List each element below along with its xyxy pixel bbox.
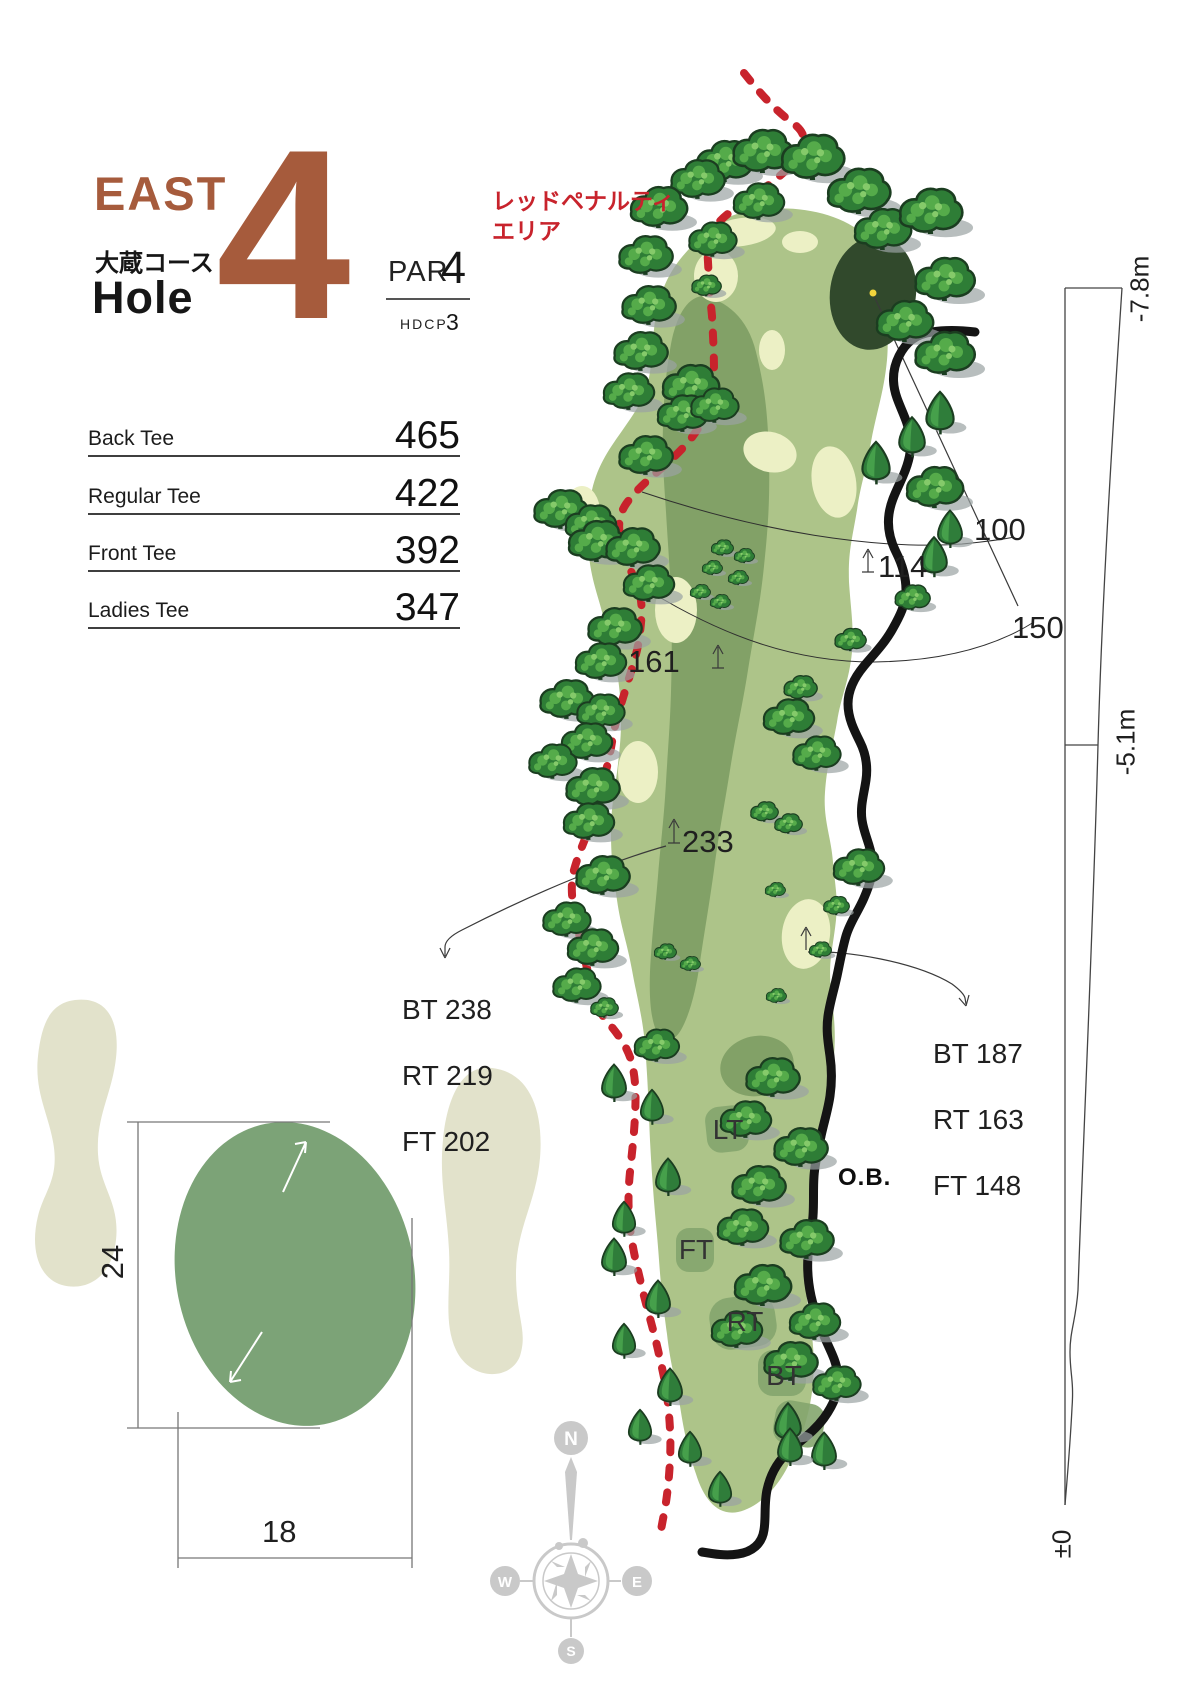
tree-icon xyxy=(613,1324,646,1359)
carry-right-bt: BT 187 xyxy=(933,1037,1024,1070)
elevation-mid-label: -5.1m xyxy=(1111,709,1142,775)
penalty-line2: エリア xyxy=(492,216,675,246)
compass-e: E xyxy=(632,1574,642,1591)
penalty-line1: レッドペナルティ xyxy=(492,186,675,216)
pin-icon xyxy=(870,290,877,297)
carry-left-block: BT 238 RT 219 FT 202 xyxy=(402,960,493,1191)
tree-icon xyxy=(916,258,985,304)
compass-w: W xyxy=(498,1574,513,1591)
tee-mark-rt: RT xyxy=(727,1306,764,1338)
tee-row-ladies: Ladies Tee 347 xyxy=(88,574,460,629)
tree-icon xyxy=(926,392,966,435)
tee-value: 347 xyxy=(395,588,460,627)
ob-label: O.B. xyxy=(838,1164,891,1192)
tree-icon xyxy=(834,849,893,888)
tee-row-back: Back Tee 465 xyxy=(88,402,460,457)
carry-left-rt: RT 219 xyxy=(402,1059,493,1092)
penalty-area-label: レッドペナルティ エリア xyxy=(492,186,675,246)
distance-114: 114 xyxy=(878,549,927,585)
tree-icon xyxy=(613,1202,646,1237)
tee-value: 465 xyxy=(395,416,460,455)
elevation-green-label: -7.8m xyxy=(1125,256,1156,322)
carry-left-ft: FT 202 xyxy=(402,1125,493,1158)
distance-161: 161 xyxy=(628,644,680,680)
tee-mark-bt: BT xyxy=(766,1360,802,1392)
distance-233: 233 xyxy=(682,824,734,860)
tee-label: Back Tee xyxy=(88,427,174,455)
elevation-tee-label: ±0 xyxy=(1047,1530,1078,1559)
carry-left-bt: BT 238 xyxy=(402,993,493,1026)
bunker-left xyxy=(35,1000,117,1287)
tee-row-regular: Regular Tee 422 xyxy=(88,460,460,515)
compass-n: N xyxy=(564,1429,578,1450)
tee-mark-lt: LT xyxy=(713,1114,744,1146)
distance-100: 100 xyxy=(974,512,1026,548)
hdcp-label: HDCP xyxy=(400,316,448,332)
hdcp-value: 3 xyxy=(446,309,459,336)
tee-label: Front Tee xyxy=(88,542,176,570)
carry-right-block: BT 187 RT 163 FT 148 xyxy=(933,1004,1024,1235)
tree-icon xyxy=(629,1410,662,1445)
hole-word: Hole xyxy=(92,272,194,324)
tee-row-front: Front Tee 392 xyxy=(88,517,460,572)
compass-s: S xyxy=(566,1643,575,1659)
par-value: 4 xyxy=(441,242,466,294)
tree-icon xyxy=(907,467,973,511)
par-divider xyxy=(386,298,470,300)
elevation-profile xyxy=(1065,288,1122,1505)
tee-value: 392 xyxy=(395,531,460,570)
tee-label: Regular Tee xyxy=(88,485,201,513)
region-title: EAST xyxy=(94,166,227,221)
tree-icon xyxy=(938,511,973,549)
tee-mark-ft: FT xyxy=(679,1234,713,1266)
distance-150: 150 xyxy=(1012,610,1064,646)
tree-icon xyxy=(782,135,855,183)
par-label: PAR xyxy=(388,256,448,289)
carry-right-ft: FT 148 xyxy=(933,1169,1024,1202)
tee-value: 422 xyxy=(395,474,460,513)
green-width-label: 18 xyxy=(262,1514,296,1550)
carry-right-rt: RT 163 xyxy=(933,1103,1024,1136)
tee-label: Ladies Tee xyxy=(88,599,189,627)
hole-guide-page: N W E S EAST 大蔵コース Hole 4 PAR 4 HDCP 3 B… xyxy=(0,0,1190,1683)
hole-number: 4 xyxy=(216,114,351,356)
compass-rose: N W E S xyxy=(490,1421,652,1664)
green-detail-shape xyxy=(149,1101,441,1447)
green-depth-label: 24 xyxy=(95,1245,131,1279)
